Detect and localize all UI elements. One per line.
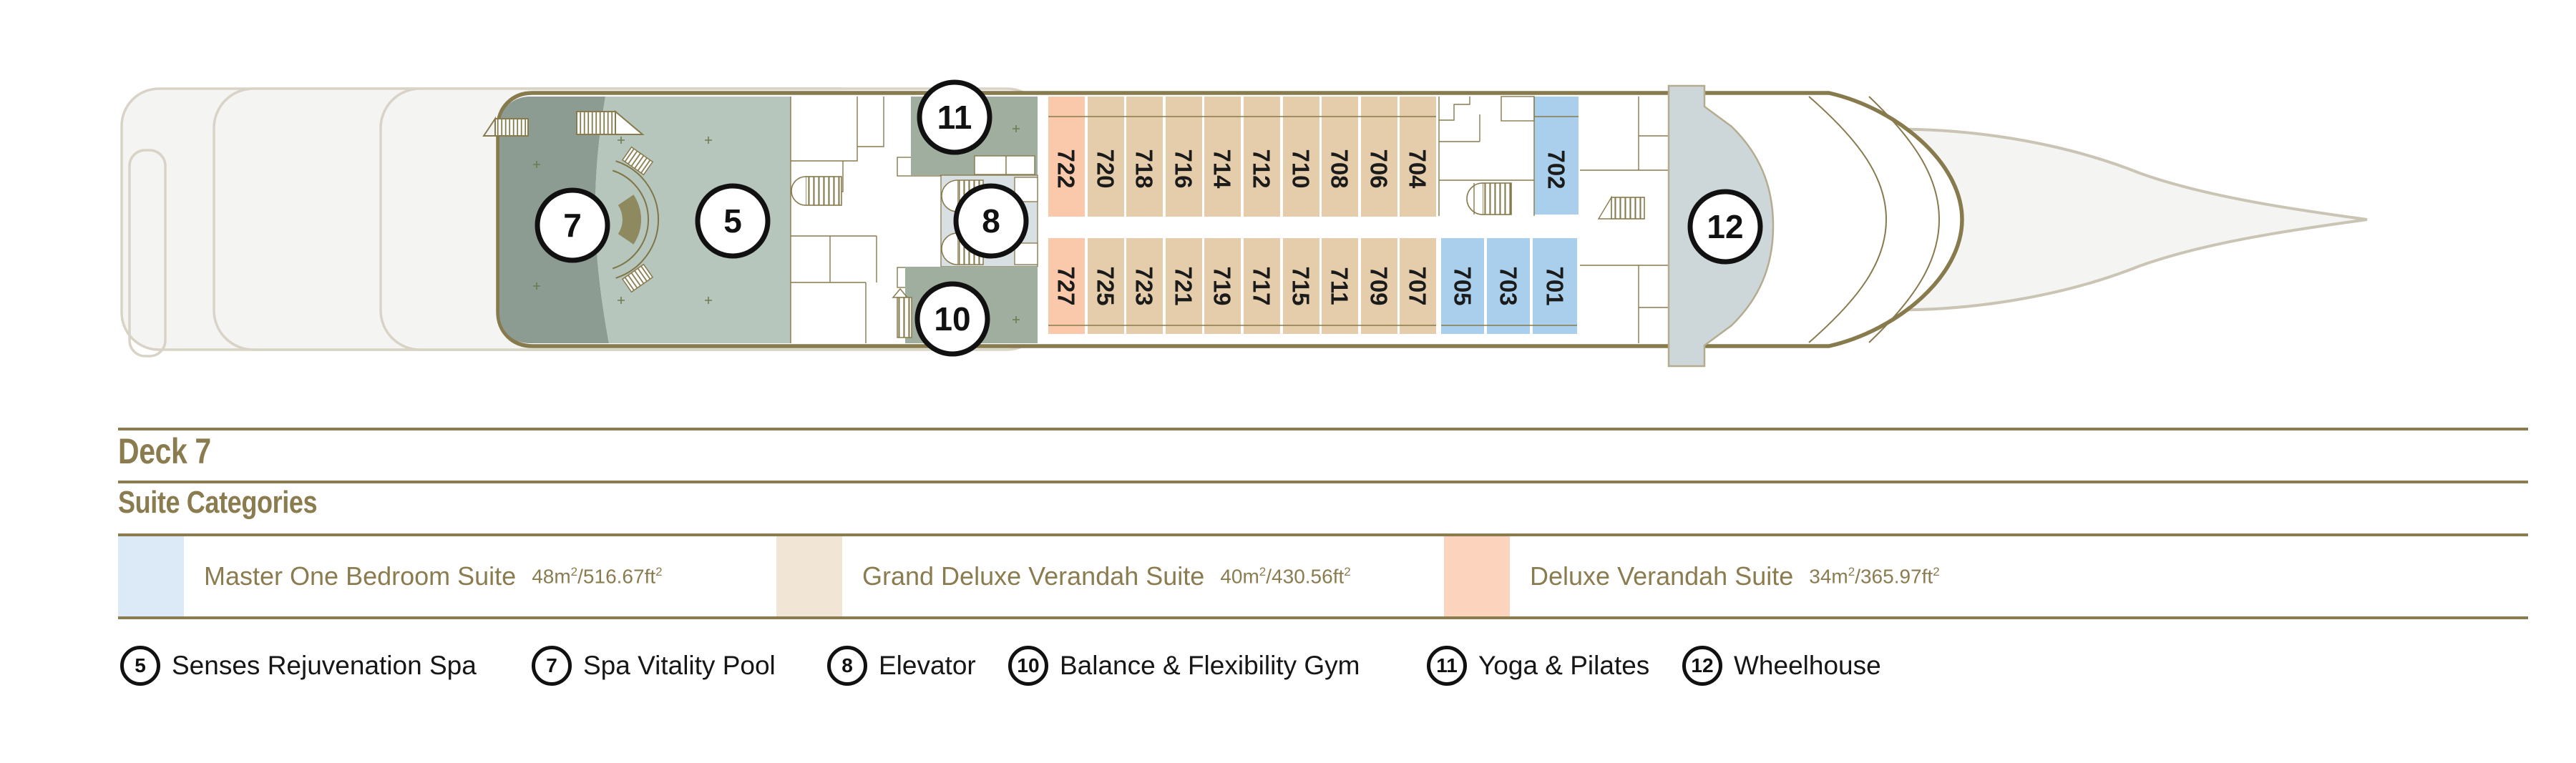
cabin-number: 719 [1209, 266, 1236, 305]
category-size: 34m2/365.97ft2 [1809, 565, 1939, 588]
legend-wheelhouse: 12 Wheelhouse [1682, 645, 1881, 686]
cabin-number: 702 [1543, 149, 1570, 189]
legend-senses-rejuvenation-spa: 5 Senses Rejuvenation Spa [120, 645, 477, 686]
svg-text:12: 12 [1707, 208, 1743, 245]
cabin-number: 705 [1450, 266, 1476, 305]
category-size: 40m2/430.56ft2 [1220, 565, 1350, 588]
divider [118, 616, 2528, 619]
cabin-number: 715 [1288, 266, 1314, 305]
marker-spa-vitality-pool: 7 [537, 190, 608, 260]
legend-yoga-pilates: 11 Yoga & Pilates [1427, 645, 1649, 686]
cabin-number: 710 [1288, 149, 1314, 188]
venue-number-badge: 5 [120, 646, 160, 686]
ladder-icon [897, 297, 912, 338]
venue-number-badge: 11 [1427, 646, 1467, 686]
venue-number-badge: 12 [1682, 646, 1722, 686]
cabin-number: 709 [1366, 266, 1392, 305]
legend-master-one-bedroom-suite: Master One Bedroom Suite 48m2/516.67ft2 [118, 536, 663, 616]
cabin-number: 718 [1131, 149, 1158, 188]
marker-elevator: 8 [956, 186, 1026, 256]
cabin-number: 704 [1405, 149, 1431, 189]
category-name: Master One Bedroom Suite [204, 561, 516, 591]
marker-yoga-pilates: 11 [919, 82, 990, 152]
cabin-number: 712 [1249, 149, 1275, 188]
cabin-number: 727 [1053, 266, 1080, 305]
legend-deluxe-verandah-suite: Deluxe Verandah Suite 34m2/365.97ft2 [1444, 536, 1940, 616]
venue-label: Spa Vitality Pool [583, 651, 776, 681]
venue-number-badge: 7 [532, 646, 572, 686]
venue-label: Elevator [879, 651, 976, 681]
svg-text:8: 8 [982, 202, 1000, 240]
cabin-number: 723 [1131, 266, 1158, 305]
category-name: Deluxe Verandah Suite [1530, 561, 1793, 591]
venue-label: Yoga & Pilates [1478, 651, 1649, 681]
cabin-number: 708 [1327, 149, 1353, 188]
legend-swatch-grand-deluxe [776, 536, 842, 616]
marker-wheelhouse: 12 [1690, 192, 1760, 262]
staircase-icon [791, 177, 841, 205]
cabin-number: 714 [1209, 149, 1236, 189]
legend-grand-deluxe-verandah-suite: Grand Deluxe Verandah Suite 40m2/430.56f… [776, 536, 1351, 616]
venue-number-badge: 10 [1008, 646, 1048, 686]
divider [118, 481, 2528, 483]
svg-text:7: 7 [563, 207, 582, 244]
cabin-number: 720 [1093, 149, 1119, 188]
category-name: Grand Deluxe Verandah Suite [862, 561, 1204, 591]
venue-label: Wheelhouse [1734, 651, 1881, 681]
deck-title: Deck 7 [118, 430, 231, 472]
ship-deck-plan: 722 720 718 716 714 712 710 708 706 704 … [0, 0, 2576, 400]
cabin-number: 711 [1327, 267, 1353, 305]
cabin-number: 721 [1171, 266, 1197, 305]
cabin-number: 716 [1171, 149, 1197, 188]
legend-swatch-deluxe-verandah [1444, 536, 1510, 616]
venue-label: Balance & Flexibility Gym [1060, 651, 1360, 681]
cabins-bottom-row: 727 725 723 721 719 717 715 711 709 707 … [1048, 238, 1577, 334]
legend-balance-flexibility-gym: 10 Balance & Flexibility Gym [1008, 645, 1360, 686]
cabin-number: 707 [1405, 266, 1431, 305]
deck-plan-page: 722 720 718 716 714 712 710 708 706 704 … [0, 0, 2576, 763]
cabin-number: 725 [1093, 266, 1119, 305]
venue-label: Senses Rejuvenation Spa [172, 651, 477, 681]
cabin-number: 722 [1053, 149, 1080, 188]
cabin-number: 717 [1249, 266, 1275, 305]
legend-swatch-master-suite [118, 536, 184, 616]
marker-gym: 10 [917, 284, 987, 354]
cabin-number: 706 [1366, 149, 1392, 188]
cabin-number: 701 [1542, 266, 1568, 305]
legend-elevator: 8 Elevator [827, 645, 976, 686]
svg-text:11: 11 [937, 99, 972, 136]
divider [118, 428, 2528, 430]
svg-text:10: 10 [934, 300, 970, 338]
cabin-number: 703 [1496, 266, 1522, 305]
legend-spa-vitality-pool: 7 Spa Vitality Pool [532, 645, 776, 686]
svg-text:5: 5 [723, 202, 742, 240]
venue-number-badge: 8 [827, 646, 867, 686]
marker-senses-rejuvenation-spa: 5 [698, 186, 768, 256]
category-size: 48m2/516.67ft2 [532, 565, 662, 588]
suite-categories-title: Suite Categories [118, 485, 361, 521]
